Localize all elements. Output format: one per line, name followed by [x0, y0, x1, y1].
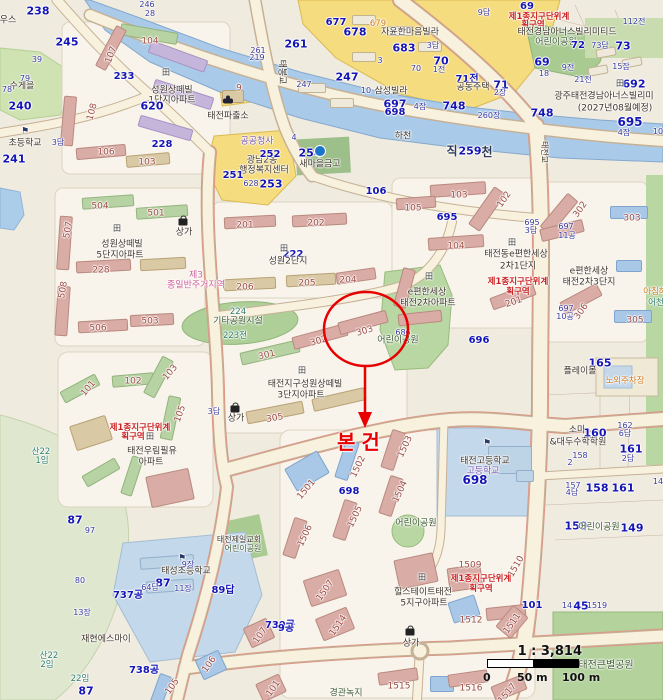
annotation-layer	[0, 0, 663, 700]
scale-bar-graphic	[487, 659, 579, 668]
scale-tick-100: 100 m	[562, 671, 600, 684]
map-canvas[interactable]: 본건 1 : 3,814 0 50 m 100 m 238우스246282453…	[0, 0, 663, 700]
scale-tick-0: 0	[483, 671, 491, 684]
subject-label: 본건	[337, 426, 386, 455]
scale-ratio: 1 : 3,814	[518, 644, 582, 659]
scale-tick-50: 50 m	[517, 671, 548, 684]
subject-circle	[324, 292, 408, 366]
